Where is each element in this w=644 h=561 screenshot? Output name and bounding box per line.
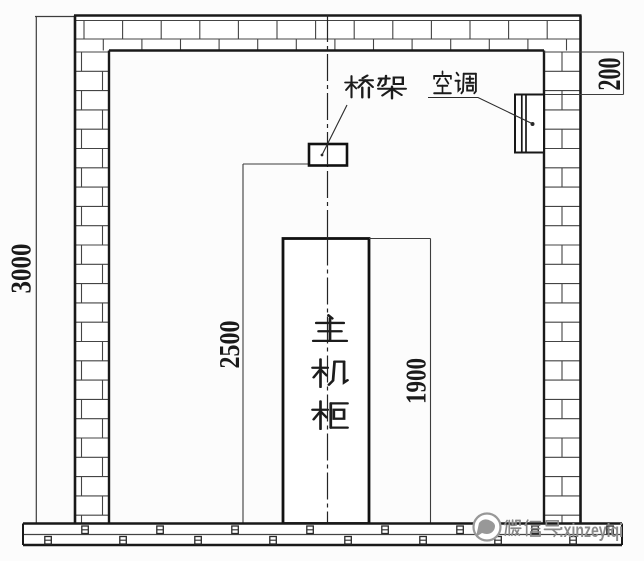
svg-text:2500: 2500 [215, 321, 246, 369]
svg-text::xinzeyiqi: :xinzeyiqi [559, 521, 623, 542]
svg-text:3000: 3000 [7, 244, 38, 294]
svg-text:1900: 1900 [402, 358, 433, 404]
svg-text:200: 200 [592, 58, 628, 91]
